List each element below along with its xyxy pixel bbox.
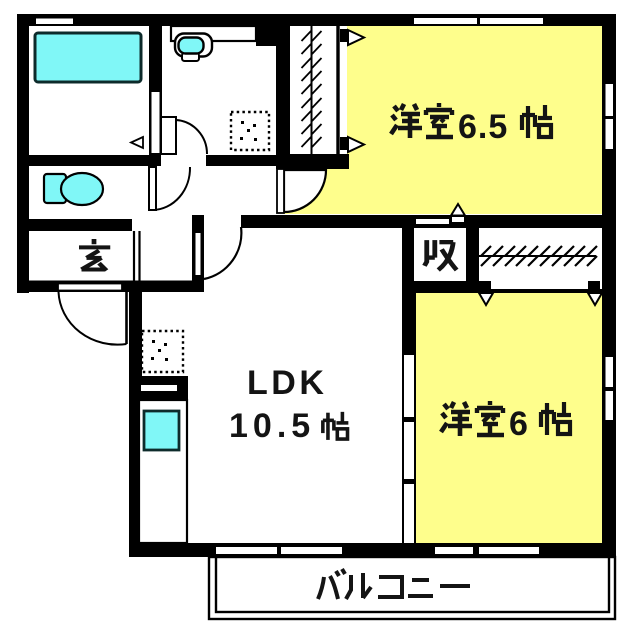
svg-text:6.5: 6.5 [458, 108, 508, 146]
svg-text:6: 6 [509, 405, 528, 443]
svg-text:LDK: LDK [247, 364, 327, 402]
svg-text:10.5: 10.5 [229, 407, 315, 445]
